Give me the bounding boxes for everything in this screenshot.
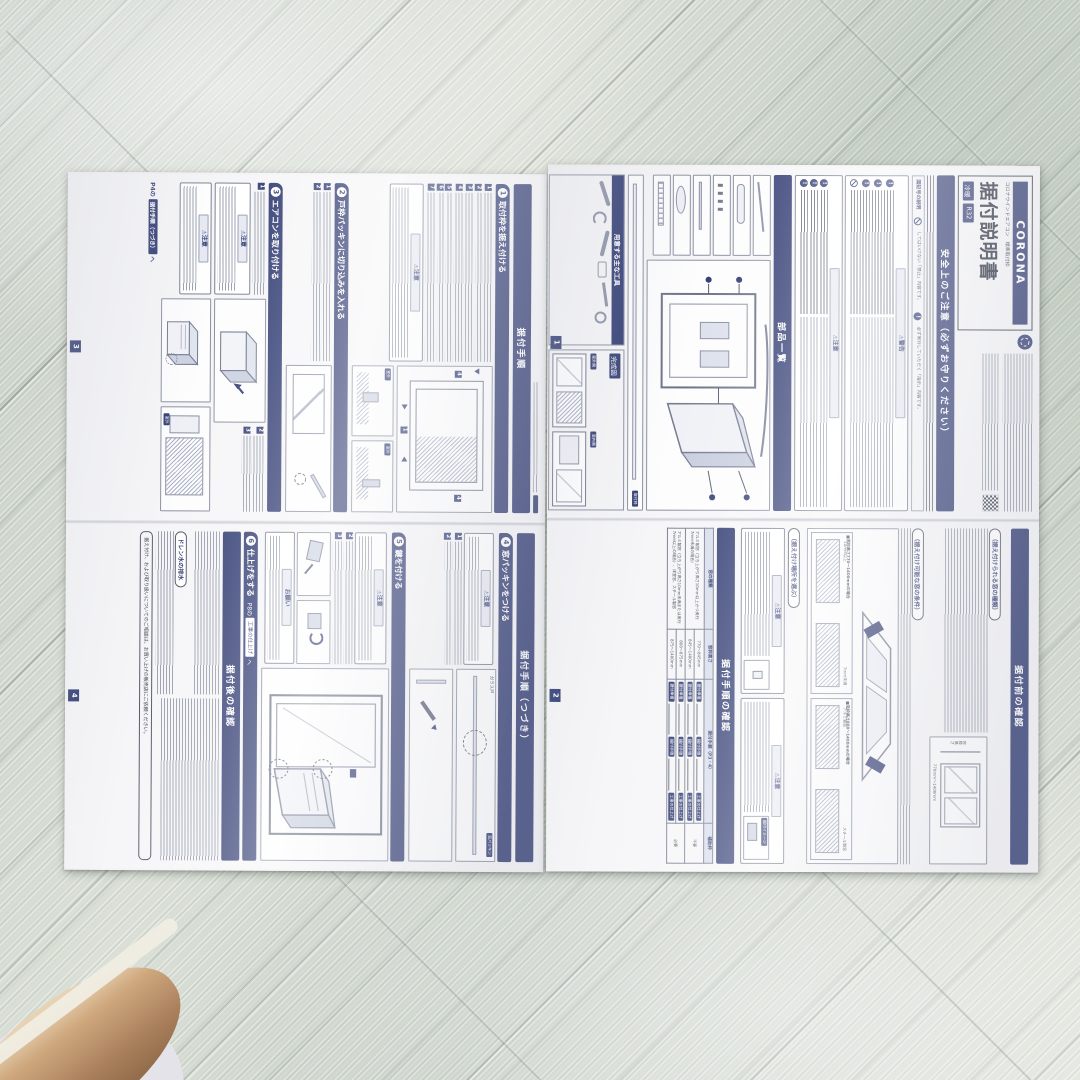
section5-number: 5 — [394, 536, 404, 546]
refrigerant-badge: R32 — [963, 203, 974, 222]
pencil-icon — [602, 282, 608, 306]
caution-box: ⚠注意 — [389, 183, 424, 361]
body-text-lines — [900, 528, 911, 864]
caution-tag: ⚠注意 — [481, 570, 491, 627]
section2-number: 2 — [337, 187, 347, 197]
body-text-lines — [252, 435, 264, 511]
body-text-lines — [800, 190, 808, 315]
section2-header: 2 戸枠パッキンに切り込みを入れる — [333, 183, 349, 512]
indoor-label: 室内側 — [590, 432, 596, 448]
window-height-diagram: 窓枠高さ 770mm〜1400mm — [930, 737, 988, 865]
mandatory-icon: ! — [886, 179, 894, 187]
lock-detail-diagram — [297, 532, 331, 596]
indoor-view: 室内側 — [552, 432, 607, 507]
caution-item: ! — [819, 179, 828, 507]
height-cell: 800〜875mm — [676, 629, 685, 679]
part-box — [673, 175, 691, 256]
body-text-lines — [193, 531, 220, 694]
caution-tag: ⚠注意 — [374, 570, 384, 627]
qr-code — [982, 494, 999, 511]
step-number: 1 — [485, 184, 492, 191]
height-cell: 875〜1400mm — [667, 629, 676, 679]
body-text-lines — [437, 193, 444, 362]
body-text-lines — [452, 542, 462, 665]
caution-box: ⚠注意 — [741, 528, 785, 694]
body-text-lines — [872, 190, 882, 315]
cutter-icon — [598, 261, 607, 277]
aux-cell: 不要 — [685, 823, 703, 863]
dim-7mm: 7mm未満 — [842, 667, 848, 685]
section4-header: 4 窓パッキンをつける — [497, 533, 513, 862]
procedure-banner: 据付手順 — [512, 184, 532, 513]
section6-title: 仕上げをする — [245, 549, 256, 597]
section4-number: 4 — [501, 537, 511, 547]
flow-cell: 据付準備据付手順工事の仕上げ — [694, 679, 704, 823]
proc-check-banner: 据付手順の確認 — [717, 528, 736, 864]
page1: CORONA コロナウインドエアコン 標準取付枠 据付説明書 冷暖 R32 — [547, 166, 1040, 519]
caution-box: ⚠注意 — [214, 183, 251, 295]
request-tag: お願い — [281, 569, 291, 626]
scissors-icon — [595, 311, 607, 323]
step-number: 2 — [257, 426, 264, 433]
body-text-lines — [809, 317, 817, 507]
page-number: 3 — [70, 340, 81, 353]
body-text-lines — [267, 536, 280, 660]
section5-title: 鍵を付ける — [393, 549, 404, 589]
height-cell: 770〜845mm — [695, 629, 704, 679]
step-number: 1 — [258, 183, 265, 190]
outdoor-view: 室外側 — [552, 353, 607, 428]
height-cell: 845〜1400mm — [685, 629, 694, 679]
part-box — [733, 175, 751, 256]
page1-view: CORONA コロナウインドエアコン 標準取付枠 据付説明書 冷暖 R32 — [547, 166, 1040, 519]
table-row: アルミ製窓（立ち上がり高さ10mm以上かつ奥行7mm未満の場合） 770〜845… — [694, 528, 704, 863]
mandatory-icon: ! — [820, 179, 828, 187]
window-cond-label: （据え付け可能な窓の条件） — [912, 528, 924, 620]
parts-exploded-diagram — [646, 259, 771, 511]
caution-box: ⚠注意 — [180, 182, 213, 294]
cross-section-group: ■窓枠高さ800〜1400mmの場合 アルミ製窓 スチール製窓 — [810, 698, 852, 860]
measuring-tape-icon — [593, 211, 607, 225]
precheck-banner: 据付前の確認 — [1010, 529, 1029, 865]
next-page-chip: 据付手順（つづき） — [148, 199, 157, 255]
mandatory-icon: ! — [800, 179, 808, 187]
photo-scene: 据付手順 1 取付枠を据え付ける 1 2 3 4 5 6 7 — [0, 0, 1080, 1080]
step-number: 3 — [243, 426, 250, 433]
section6-header: 6 仕上げをする P8の 工事の仕上げ へ — [242, 532, 258, 861]
body-text-lines — [884, 190, 894, 315]
legend-prohibit-text: してはいけない「禁止」内容です。 — [915, 231, 921, 302]
sill-detail-diagram: 室外 — [351, 365, 393, 437]
finished-view-box: 完成図 室外側 室内側 — [548, 349, 624, 511]
caution-item: ! — [809, 179, 818, 507]
packing-cut-diagram — [285, 365, 332, 513]
install-image-diagram: 据付イメージ — [743, 816, 769, 860]
safety-banner: 安全上のご注意（必ずお守りください） — [936, 175, 955, 511]
mandatory-icon: ! — [874, 179, 882, 187]
body-text-lines — [343, 541, 353, 664]
procedure-table: 窓の種類 窓枠高さ 据付手順（P3・4） 補助枠 アルミ製窓（立ち上がり高さ10… — [666, 528, 714, 864]
step-number: 6 — [437, 184, 444, 191]
body-text-lines — [358, 536, 373, 660]
section2-title: 戸枠パッキンに切り込みを入れる — [336, 200, 348, 320]
rail-label: 取付枠 — [632, 491, 638, 507]
window-cond-diagram: ■窓枠高さ770〜1400mmの場合 10mm以上 7mm未満 ■窓枠高さ800… — [806, 528, 899, 864]
body-text-lines — [321, 192, 331, 361]
screwdriver-icon — [599, 181, 611, 207]
section1-title: 取付枠を据え付ける — [497, 201, 508, 273]
tool-icons — [587, 175, 611, 344]
body-text-lines — [819, 317, 827, 507]
body-text-lines — [744, 532, 770, 656]
caution-tag: ⚠注意 — [410, 233, 420, 311]
install-image-label: 据付イメージ — [761, 818, 767, 846]
window-type-cell: アルミ製窓（立ち上がり高さ10mm以上かつ奥行7mm未満の場合） — [685, 528, 704, 629]
flow-cell: 据付準備据付手順工事の仕上げ — [676, 679, 686, 823]
caution-item: ! — [799, 179, 808, 507]
step-row: 2 — [343, 532, 353, 664]
section3-title: エアコンを取り付ける — [270, 200, 281, 280]
body-text-lines — [475, 193, 482, 362]
flow-cell: 据付準備据付手順工事の仕上げ — [667, 679, 677, 823]
step-number: 2 — [475, 184, 482, 191]
body-text-lines — [926, 175, 934, 511]
product-subtitle: コロナウインドエアコン 標準取付枠 — [1004, 182, 1011, 325]
section3-header: 3 エアコンを取り付ける — [267, 183, 283, 512]
window-packing-diagram: 窓パッキン ガラス戸 — [455, 668, 496, 862]
caution-tag: ⚠注意 — [199, 214, 209, 262]
step-number: 7 — [428, 184, 435, 191]
body-text-lines — [453, 193, 463, 362]
step-row: 1 — [321, 183, 331, 361]
symbol-legend: 図記号の説明 してはいけない「禁止」内容です。 ! 必ず実行していただく「指示」… — [911, 175, 925, 511]
col-flow: 据付手順（P3・4） — [703, 679, 713, 823]
step-number: 4 — [456, 184, 463, 191]
col-window-height: 窓枠高さ — [704, 629, 714, 679]
body-text-lines — [425, 193, 435, 362]
ac-installed-diagram — [260, 667, 389, 861]
cross-section-group: ■窓枠高さ770〜1400mmの場合 10mm以上 7mm未満 — [811, 532, 853, 694]
mode-badge: 冷暖 — [963, 181, 974, 200]
table-header-row: 窓の種類 窓枠高さ 据付手順（P3・4） 補助枠 — [703, 528, 714, 863]
finished-view-label: 完成図 — [609, 353, 620, 379]
legend-title: 図記号の説明 — [915, 179, 922, 209]
page3-view: 据付手順 1 取付枠を据え付ける 1 2 3 4 5 6 7 — [66, 174, 547, 522]
glass-label: ガラス戸 — [487, 676, 493, 694]
part-box — [693, 175, 711, 256]
flow-cell: 据付準備据付手順工事の仕上げ — [685, 679, 695, 823]
frame-install-diagram: 4 4 1 — [396, 365, 493, 513]
body-text-lines — [333, 541, 343, 664]
col-aux: 補助枠 — [703, 823, 713, 863]
body-text-lines — [156, 531, 175, 694]
manual-title: 据付説明書 — [976, 181, 1003, 324]
step-number: 5 — [445, 184, 452, 191]
caution-tag: ⚠注意 — [771, 745, 781, 818]
body-text-lines — [311, 192, 321, 361]
dim-10mm: 10mm以上 — [842, 541, 848, 562]
refrigerant-notice-block — [957, 334, 1032, 512]
page2-view: 据付前の確認 （据え付けられる窓の種類） 窓枠高さ 770mm〜1400mm — [546, 519, 1039, 872]
body-text-lines — [944, 528, 989, 732]
body-text-lines — [467, 537, 480, 661]
caution-box: ⚠注意 据付イメージ — [740, 698, 784, 864]
prohibited-icon — [914, 217, 922, 225]
packing-detail-diagram — [408, 668, 453, 862]
body-text-lines — [884, 317, 894, 507]
tools-banner: 用意する主な工具 — [611, 176, 623, 345]
step-row: 6 — [436, 184, 444, 362]
title-block: CORONA コロナウインドエアコン 標準取付枠 据付説明書 冷暖 R32 — [957, 175, 1032, 330]
brand-logo: CORONA — [1013, 182, 1028, 325]
body-text-lines — [463, 193, 473, 362]
height-dim-label: 窓枠高さ — [951, 740, 967, 746]
step-row: 1 — [253, 183, 266, 295]
section3-number: 3 — [271, 187, 281, 197]
body-text-lines — [445, 542, 452, 665]
page-number: 1 — [550, 336, 561, 349]
finish-ref-note: P8の 工事の仕上げ へ — [246, 603, 255, 666]
sill-detail-diagram: 室外 — [351, 441, 393, 513]
ac-insert-diagram — [214, 298, 267, 422]
alum-label: アルミ製窓 — [841, 707, 847, 727]
caution-box: ⚠注意 ! ! ! — [794, 175, 843, 511]
step-row: 2 — [444, 533, 452, 665]
section1-number: 1 — [498, 188, 508, 198]
step-row: 4 — [453, 184, 463, 362]
warning-item — [850, 179, 859, 507]
section6-number: 6 — [246, 536, 256, 546]
section4-title: 窓パッキンをつける — [500, 550, 511, 622]
reference-tag — [533, 495, 538, 513]
page4-view: 据付手順（つづき） 4 窓パッキンをつける ⚠注意 1 2 — [64, 523, 545, 871]
outdoor-label: 室外側 — [590, 353, 596, 369]
body-text-lines — [820, 190, 828, 315]
steel-label: スチール製窓 — [841, 827, 847, 851]
col-window-type: 窓の種類 — [704, 528, 714, 629]
procedure-cont-banner: 据付手順（つづき） — [515, 533, 535, 862]
aux-cell: 必要 — [667, 823, 685, 863]
warning-tag: ⚠警告 — [896, 268, 906, 419]
ac-mounted-diagram — [161, 298, 212, 403]
wrench-icon — [600, 230, 610, 256]
tools-box: 用意する主な工具 — [548, 174, 624, 345]
step-row: 5 — [444, 184, 452, 362]
section1-header: 1 取付枠を据え付ける — [494, 184, 510, 513]
mandatory-icon: ! — [810, 179, 818, 187]
prohibited-icon — [850, 179, 858, 187]
lock-turn-diagram — [297, 600, 331, 664]
body-text-lines — [982, 353, 998, 490]
warning-item: ! — [860, 179, 871, 507]
page3: 据付手順 1 取付枠を据え付ける 1 2 3 4 5 6 7 — [66, 174, 547, 522]
body-text-lines — [241, 435, 250, 511]
step-number: 1 — [324, 183, 331, 190]
request-box: お願い — [264, 532, 295, 664]
step-row: 3 — [241, 426, 250, 511]
final-note-box: 据え付け、および取り扱いについてのご相談は、お買い上げの販売店にご依頼ください。 — [139, 531, 154, 860]
window-type-cell: アルミ製窓（立ち上がり高さ10mm未満または奥行7mm以上の場合）、洋室窓、スチ… — [667, 528, 686, 629]
body-text-lines — [1002, 353, 1032, 512]
page-number: 2 — [550, 689, 561, 702]
step-row: 7 — [425, 184, 435, 362]
step-row: 2 — [474, 184, 482, 362]
body-text-lines — [253, 192, 266, 295]
diagram-label: 室外 — [164, 414, 170, 426]
body-text-lines — [799, 317, 807, 507]
step-row: 2 — [252, 426, 264, 511]
parts-banner: 部品一覧 — [773, 175, 792, 511]
eco-emblem-icon — [1017, 334, 1032, 349]
body-text-lines — [392, 187, 409, 357]
drain-label: ドレン水の排水 — [175, 531, 187, 587]
table-row: アルミ製窓（立ち上がり高さ10mm未満または奥行7mm以上の場合）、洋室窓、スチ… — [676, 528, 686, 863]
caution-tag: ⚠注意 — [829, 268, 839, 419]
height-dim-range: 770mm〜1400mm — [932, 764, 938, 801]
warning-item: ! — [872, 179, 883, 507]
page4: 据付手順（つづき） 4 窓パッキンをつける ⚠注意 1 2 — [64, 523, 545, 871]
section5-header: 5 鍵を付ける — [390, 532, 406, 861]
next-page-note: P4の 据付手順（つづき） へ — [147, 182, 158, 511]
packing-label: 窓パッキン — [486, 833, 492, 857]
body-text-lines — [534, 382, 539, 492]
body-text-lines — [860, 190, 870, 315]
caution-tag: ⚠注意 — [772, 575, 782, 648]
step-row: 2 — [311, 183, 321, 361]
outlet-diagram — [744, 660, 770, 690]
caution-box: ⚠注意 — [464, 533, 495, 665]
body-text-lines — [482, 193, 492, 362]
mandatory-icon: ! — [862, 179, 870, 187]
body-text-lines — [183, 186, 198, 290]
body-text-lines — [810, 190, 818, 315]
window-types-label: （据え付けられる窓の種類） — [989, 529, 1001, 621]
step-number: 3 — [466, 184, 473, 191]
caution-tag: ⚠注意 — [237, 215, 247, 263]
part-box — [653, 175, 671, 256]
page-number: 4 — [68, 689, 79, 702]
manual-sheet-right: CORONA コロナウインドエアコン 標準取付枠 据付説明書 冷暖 R32 — [546, 164, 1040, 872]
body-text-lines — [851, 190, 858, 315]
step-row: 1 — [482, 184, 492, 362]
mandatory-icon: ! — [914, 313, 922, 321]
body-text-lines — [445, 193, 452, 362]
step-row: 3 — [333, 532, 343, 664]
body-text-lines — [160, 698, 219, 861]
body-text-lines — [743, 702, 769, 812]
mount-rail-part: 取付枠 — [627, 175, 644, 511]
after-check-banner: 据付後の確認 — [221, 532, 241, 861]
step-row: 3 — [463, 184, 473, 362]
step-row: 1 — [452, 533, 462, 665]
body-text-lines — [217, 187, 236, 291]
warning-item: ! — [884, 179, 895, 507]
caution-box: ⚠注意 — [355, 532, 388, 664]
warning-box: ⚠警告 ! ! ! — [845, 175, 910, 511]
finish-ref-chip: 工事の仕上げ — [246, 618, 255, 657]
body-text-lines — [851, 317, 858, 507]
part-box — [713, 175, 731, 256]
grille-panel-diagram: 室外 — [160, 407, 211, 512]
place-label: （据え付け場所を選ぶ） — [788, 528, 800, 608]
manual-sheet-left: 据付手順 1 取付枠を据え付ける 1 2 3 4 5 6 7 — [64, 172, 547, 872]
body-text-lines — [872, 317, 882, 507]
body-text-lines — [860, 317, 870, 507]
step-number: 2 — [314, 183, 321, 190]
legend-must-text: 必ず実行していただく「指示」内容です。 — [915, 327, 921, 412]
page2: 据付前の確認 （据え付けられる窓の種類） 窓枠高さ 770mm〜1400mm — [546, 519, 1039, 872]
part-box — [753, 175, 771, 256]
